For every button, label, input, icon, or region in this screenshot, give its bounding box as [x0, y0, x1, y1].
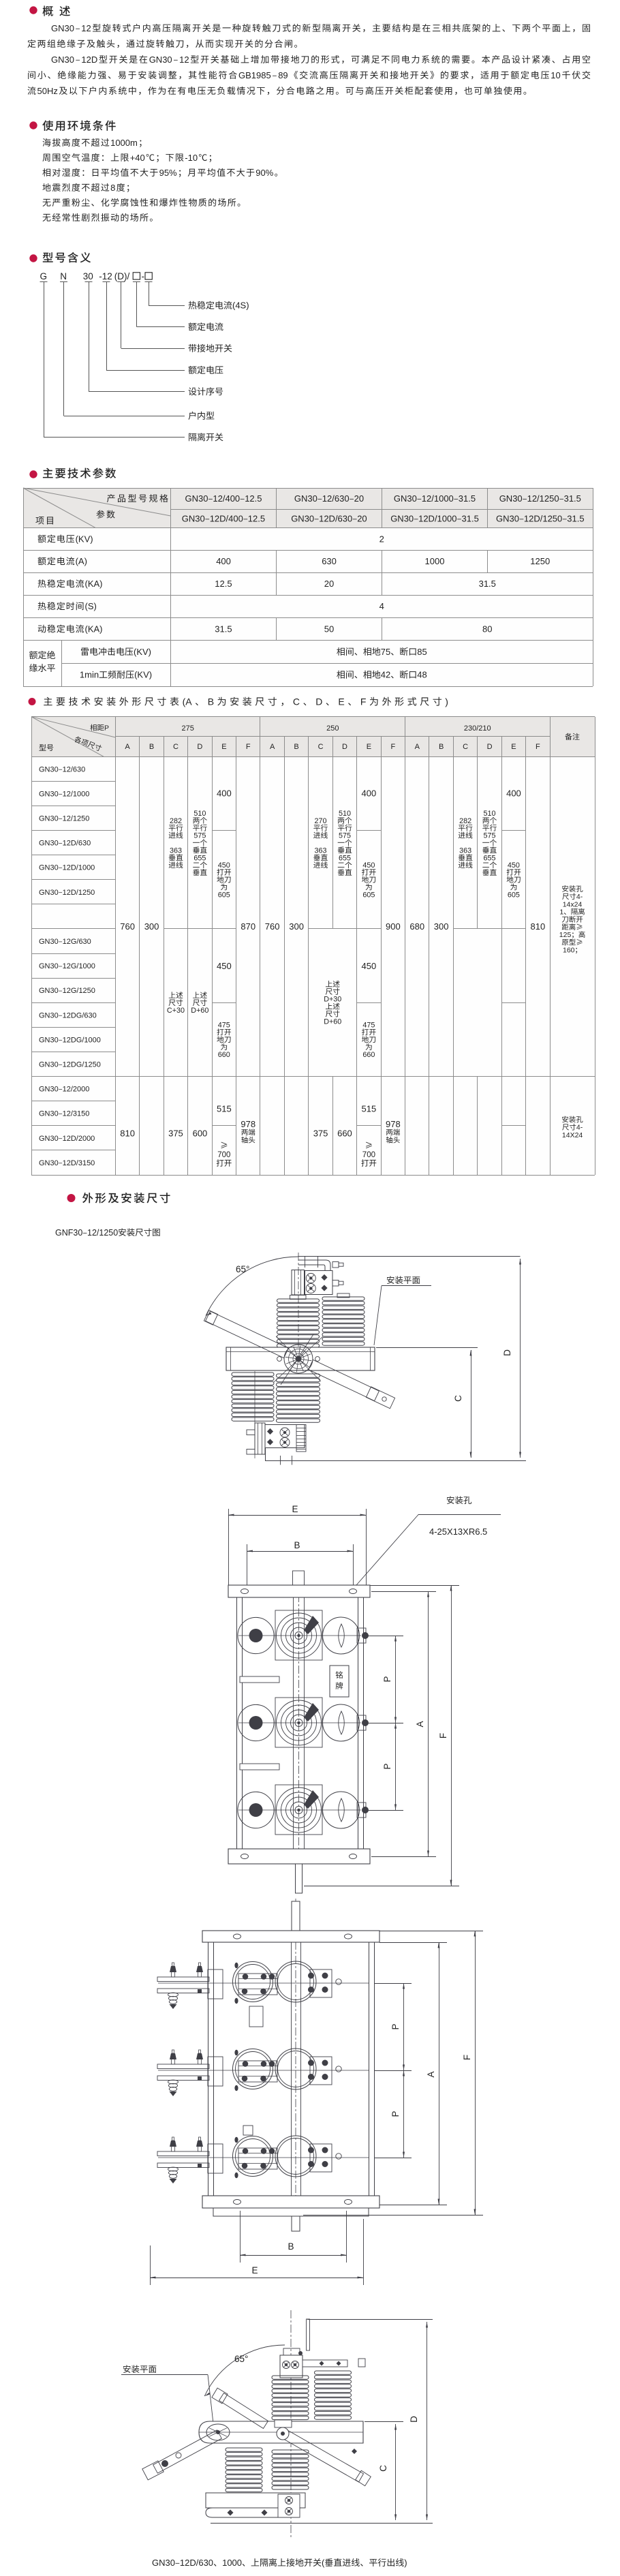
- svg-text:GN30: GN30: [51, 55, 74, 65]
- svg-text:F: F: [360, 696, 367, 707]
- svg-text:12/2000: 12/2000: [63, 1086, 90, 1094]
- svg-text:GN30: GN30: [39, 1135, 59, 1143]
- svg-text:400: 400: [216, 556, 231, 566]
- svg-text:31.5: 31.5: [462, 514, 479, 524]
- svg-text:8: 8: [110, 183, 115, 193]
- svg-text:E: E: [221, 743, 226, 751]
- svg-text:282: 282: [459, 817, 471, 825]
- svg-text:515: 515: [362, 1104, 377, 1114]
- svg-text:31.5: 31.5: [567, 514, 584, 524]
- svg-text:300: 300: [289, 921, 304, 932]
- svg-text:GB1985: GB1985: [238, 70, 271, 80]
- svg-text:230/210: 230/210: [464, 724, 491, 733]
- svg-text:B: B: [439, 743, 444, 751]
- svg-text:GN30: GN30: [39, 1159, 59, 1167]
- svg-text:810: 810: [120, 1129, 135, 1139]
- svg-text:48: 48: [417, 670, 427, 680]
- svg-text:-10: -10: [185, 153, 198, 163]
- svg-text:250: 250: [326, 724, 339, 733]
- svg-text:400: 400: [506, 788, 521, 798]
- svg-text:GN30: GN30: [152, 2558, 175, 2568]
- svg-text:P: P: [382, 1763, 392, 1769]
- svg-text:D+60: D+60: [324, 1017, 341, 1026]
- svg-text:900: 900: [386, 921, 401, 932]
- svg-text:(: (: [322, 2558, 325, 2568]
- svg-text:575: 575: [339, 832, 351, 840]
- svg-text:C: C: [318, 743, 324, 751]
- svg-text:31.5: 31.5: [479, 579, 496, 589]
- svg-text:GN30: GN30: [390, 514, 414, 524]
- svg-text:4-: 4-: [576, 1124, 583, 1132]
- svg-text:P: P: [104, 724, 109, 733]
- svg-text:(KV): (KV): [76, 534, 93, 544]
- svg-text:300: 300: [434, 921, 449, 932]
- svg-text:12/1250: 12/1250: [527, 493, 559, 504]
- svg-text:B: B: [294, 743, 298, 751]
- svg-text:14x24: 14x24: [563, 900, 583, 908]
- svg-text:1000: 1000: [425, 556, 445, 566]
- svg-text:680: 680: [409, 921, 424, 932]
- svg-text:GNF30: GNF30: [55, 1228, 82, 1238]
- svg-text:75: 75: [381, 647, 390, 657]
- svg-text:12: 12: [179, 55, 189, 65]
- svg-text:450: 450: [218, 861, 230, 870]
- svg-text:F: F: [246, 743, 251, 751]
- svg-text:GN30: GN30: [39, 1086, 59, 1094]
- svg-text:GN30: GN30: [39, 765, 59, 773]
- svg-text:50: 50: [324, 624, 334, 634]
- svg-text:D: D: [409, 2416, 419, 2423]
- svg-text:GN30: GN30: [182, 514, 205, 524]
- svg-text:GN30: GN30: [39, 987, 59, 995]
- svg-text:B: B: [149, 743, 154, 751]
- svg-text:12D/3150: 12D/3150: [63, 1159, 95, 1167]
- svg-text:363: 363: [459, 846, 471, 855]
- svg-text:P: P: [390, 2111, 401, 2117]
- svg-text:510: 510: [484, 810, 496, 818]
- svg-text:12G/1250: 12G/1250: [63, 987, 95, 995]
- svg-text:1000m: 1000m: [110, 138, 138, 148]
- svg-text:GN30: GN30: [39, 840, 59, 848]
- svg-text:12DG/1000: 12DG/1000: [63, 1036, 101, 1044]
- svg-text:1000: 1000: [222, 2558, 242, 2568]
- svg-text:660: 660: [337, 1129, 352, 1139]
- svg-text:12D/400: 12D/400: [210, 514, 243, 524]
- svg-text:-12: -12: [99, 271, 112, 281]
- svg-text:655: 655: [484, 854, 496, 862]
- svg-text:4: 4: [379, 601, 384, 611]
- svg-text:(A: (A: [183, 696, 193, 707]
- svg-text:A: A: [415, 743, 420, 751]
- svg-text:160: 160: [563, 947, 575, 955]
- svg-text:GN30: GN30: [39, 1011, 59, 1019]
- svg-text:12/3150: 12/3150: [63, 1110, 90, 1118]
- svg-text:GN30: GN30: [39, 864, 59, 872]
- svg-text:12/1000: 12/1000: [422, 493, 454, 504]
- svg-text:12: 12: [81, 23, 91, 33]
- svg-text:12/1000: 12/1000: [63, 790, 90, 798]
- svg-text:N: N: [60, 271, 67, 281]
- svg-text:E: E: [511, 743, 516, 751]
- svg-text:GN30: GN30: [39, 938, 59, 946]
- svg-text:810: 810: [531, 921, 546, 932]
- svg-text:D: D: [502, 1349, 512, 1356]
- svg-text:475: 475: [362, 1022, 375, 1030]
- svg-text:270: 270: [315, 817, 327, 825]
- svg-text:575: 575: [193, 832, 206, 840]
- svg-text:80: 80: [482, 624, 492, 634]
- svg-text:605: 605: [218, 891, 230, 899]
- svg-text:GN30: GN30: [39, 889, 59, 897]
- svg-text:450: 450: [217, 961, 232, 971]
- svg-text:(D)/: (D)/: [114, 271, 130, 281]
- svg-text:12D/2000: 12D/2000: [63, 1135, 95, 1143]
- svg-text:): ): [445, 696, 448, 707]
- svg-text:300: 300: [144, 921, 159, 932]
- svg-text:605: 605: [362, 891, 375, 899]
- svg-text:12.5: 12.5: [248, 514, 265, 524]
- svg-text:760: 760: [265, 921, 280, 932]
- svg-text:12D/630: 12D/630: [180, 2558, 213, 2568]
- svg-text:C: C: [453, 1395, 463, 1402]
- svg-text:12D/1000: 12D/1000: [418, 514, 456, 524]
- svg-text:12.5: 12.5: [215, 579, 232, 589]
- svg-text:C: C: [378, 2465, 388, 2472]
- svg-text:400: 400: [362, 788, 377, 798]
- svg-text:31.5: 31.5: [215, 624, 232, 634]
- svg-text:50Hz: 50Hz: [37, 86, 58, 96]
- svg-text:C: C: [463, 743, 468, 751]
- svg-text:85: 85: [417, 647, 427, 657]
- svg-text:90%: 90%: [255, 168, 273, 178]
- svg-text:12D/1250: 12D/1250: [524, 514, 562, 524]
- svg-text:(KV): (KV): [134, 647, 151, 657]
- svg-text:D: D: [342, 743, 347, 751]
- svg-text:B: B: [294, 1540, 300, 1550]
- svg-text:G: G: [40, 271, 48, 281]
- svg-text:): ): [404, 2558, 407, 2568]
- svg-text:515: 515: [217, 1104, 232, 1114]
- svg-text:GN30: GN30: [294, 493, 317, 504]
- svg-text:978: 978: [386, 1119, 401, 1129]
- svg-text:363: 363: [170, 846, 182, 855]
- svg-text:(KV): (KV): [134, 670, 152, 680]
- svg-text:575: 575: [484, 832, 496, 840]
- svg-text:D+60: D+60: [191, 1007, 208, 1015]
- svg-text:GN30: GN30: [394, 493, 417, 504]
- svg-text:42: 42: [381, 670, 390, 680]
- svg-text:D+30: D+30: [324, 996, 341, 1004]
- svg-text:12/1250: 12/1250: [87, 1228, 118, 1238]
- svg-text:GN30: GN30: [149, 55, 172, 65]
- svg-text:(S): (S): [85, 601, 97, 611]
- svg-text:GN30: GN30: [39, 1061, 59, 1069]
- svg-text:760: 760: [120, 921, 135, 932]
- svg-text:F: F: [438, 1733, 448, 1738]
- svg-text:655: 655: [193, 854, 206, 862]
- svg-text:F: F: [462, 2055, 472, 2060]
- svg-text:125: 125: [559, 931, 572, 939]
- svg-text:30: 30: [83, 271, 93, 281]
- svg-text:630: 630: [322, 556, 337, 566]
- svg-text:A: A: [125, 743, 130, 751]
- svg-text:12D/1000: 12D/1000: [63, 864, 95, 872]
- svg-text:363: 363: [315, 846, 327, 855]
- svg-text:475: 475: [218, 1022, 230, 1030]
- svg-text:282: 282: [170, 817, 182, 825]
- svg-text:31.5: 31.5: [564, 493, 581, 504]
- svg-text:605: 605: [508, 891, 520, 899]
- svg-text:450: 450: [508, 861, 520, 870]
- svg-text:2: 2: [379, 534, 384, 544]
- svg-text:(A): (A): [76, 556, 87, 566]
- svg-text:12D/630: 12D/630: [319, 514, 352, 524]
- svg-text:450: 450: [362, 961, 377, 971]
- svg-text:+40: +40: [130, 153, 145, 163]
- svg-text:C: C: [173, 743, 179, 751]
- svg-text:14X24: 14X24: [562, 1131, 583, 1139]
- svg-text:4-25X13XR6.5: 4-25X13XR6.5: [429, 1527, 487, 1537]
- svg-text:12D/1250: 12D/1250: [63, 889, 95, 897]
- svg-text:GN30: GN30: [499, 493, 523, 504]
- svg-text:F: F: [536, 743, 540, 751]
- svg-text:C: C: [293, 696, 300, 707]
- svg-text:D: D: [197, 743, 202, 751]
- svg-text:65°: 65°: [236, 1264, 249, 1274]
- svg-text:12DG/630: 12DG/630: [63, 1011, 97, 1019]
- svg-text:12G/1000: 12G/1000: [63, 962, 95, 970]
- svg-text:12/400: 12/400: [213, 493, 240, 504]
- svg-text:1min: 1min: [80, 670, 99, 680]
- svg-text:95%: 95%: [159, 168, 177, 178]
- svg-text:D: D: [487, 743, 493, 751]
- svg-text:B: B: [288, 2241, 294, 2252]
- svg-text:(KA): (KA): [85, 579, 103, 589]
- svg-text:P: P: [382, 1676, 392, 1682]
- svg-text:B: B: [208, 696, 214, 707]
- svg-text:GN30: GN30: [39, 962, 59, 970]
- svg-text:510: 510: [193, 810, 206, 818]
- svg-text:D: D: [315, 696, 322, 707]
- svg-text:660: 660: [218, 1051, 230, 1059]
- svg-text:655: 655: [339, 854, 351, 862]
- svg-text:GN30: GN30: [51, 23, 74, 33]
- svg-text:400: 400: [217, 788, 232, 798]
- svg-text:(KA): (KA): [85, 624, 103, 634]
- svg-text:700: 700: [362, 1151, 375, 1159]
- svg-text:10: 10: [551, 70, 560, 80]
- svg-text:1: 1: [559, 908, 563, 917]
- svg-text:20: 20: [357, 514, 367, 524]
- svg-text:700: 700: [217, 1151, 230, 1159]
- svg-text:-: -: [142, 271, 145, 281]
- svg-text:(4S): (4S): [232, 301, 249, 311]
- svg-text:E: E: [338, 696, 344, 707]
- svg-text:375: 375: [313, 1129, 328, 1139]
- svg-text:GN30: GN30: [39, 1110, 59, 1118]
- svg-text:20: 20: [324, 579, 334, 589]
- svg-text:275: 275: [182, 724, 194, 733]
- svg-text:660: 660: [362, 1051, 375, 1059]
- svg-text:978: 978: [241, 1119, 255, 1129]
- svg-text:C+30: C+30: [167, 1007, 185, 1015]
- svg-text:F: F: [391, 743, 396, 751]
- svg-text:450: 450: [362, 861, 375, 870]
- svg-text:600: 600: [193, 1129, 208, 1139]
- svg-text:GN30: GN30: [496, 514, 519, 524]
- svg-text:89: 89: [278, 70, 288, 80]
- svg-text:12D: 12D: [81, 55, 97, 65]
- svg-text:GN30: GN30: [39, 815, 59, 823]
- svg-text:A: A: [415, 1721, 425, 1727]
- svg-text:4-: 4-: [576, 893, 583, 901]
- svg-text:12/1250: 12/1250: [63, 815, 90, 823]
- svg-text:1250: 1250: [530, 556, 550, 566]
- svg-text:65°: 65°: [234, 2354, 248, 2364]
- svg-text:12.5: 12.5: [245, 493, 262, 504]
- svg-text:GN30: GN30: [291, 514, 314, 524]
- svg-text:E: E: [292, 1504, 298, 1514]
- svg-text:GN30: GN30: [39, 790, 59, 798]
- svg-text:20: 20: [354, 493, 364, 504]
- svg-text:12/630: 12/630: [63, 765, 86, 773]
- svg-text:A: A: [426, 2071, 436, 2077]
- svg-text:31.5: 31.5: [459, 493, 476, 504]
- svg-text:375: 375: [168, 1129, 183, 1139]
- svg-text:12G/630: 12G/630: [63, 938, 91, 946]
- svg-text:E: E: [367, 743, 371, 751]
- svg-text:E: E: [252, 2265, 258, 2275]
- svg-text:510: 510: [339, 810, 351, 818]
- svg-text:870: 870: [241, 921, 255, 932]
- svg-text:12DG/1250: 12DG/1250: [63, 1061, 101, 1069]
- svg-text:P: P: [390, 2023, 401, 2029]
- svg-text:GN30: GN30: [39, 1036, 59, 1044]
- svg-text:12D/630: 12D/630: [63, 840, 91, 848]
- svg-text:12/630: 12/630: [322, 493, 350, 504]
- svg-text:GN30: GN30: [185, 493, 208, 504]
- svg-text:A: A: [270, 743, 275, 751]
